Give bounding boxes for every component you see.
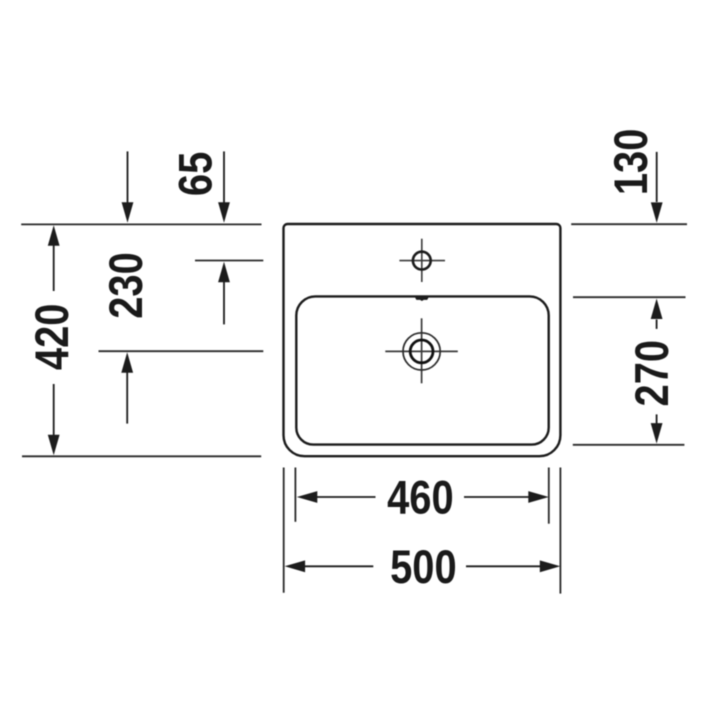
svg-text:230: 230 bbox=[100, 252, 153, 319]
svg-text:65: 65 bbox=[169, 152, 222, 196]
svg-text:460: 460 bbox=[387, 471, 454, 524]
svg-text:420: 420 bbox=[26, 304, 79, 371]
svg-text:270: 270 bbox=[626, 340, 679, 407]
svg-text:500: 500 bbox=[390, 541, 457, 594]
svg-text:130: 130 bbox=[605, 129, 658, 196]
